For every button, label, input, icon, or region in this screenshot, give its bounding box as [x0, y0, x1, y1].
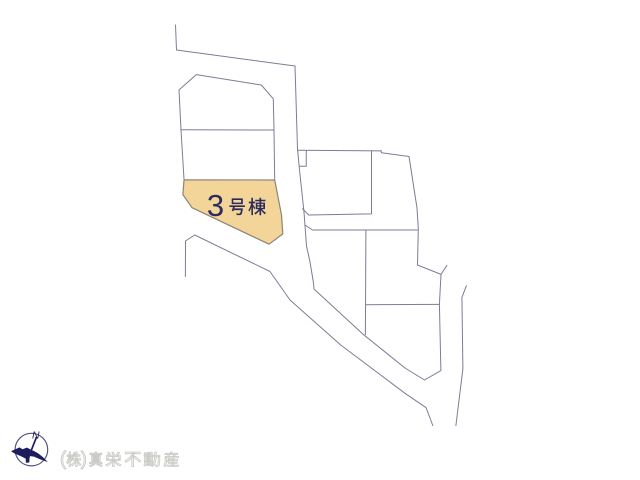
svg-text:N: N	[32, 429, 40, 441]
svg-text:3: 3	[207, 188, 224, 223]
